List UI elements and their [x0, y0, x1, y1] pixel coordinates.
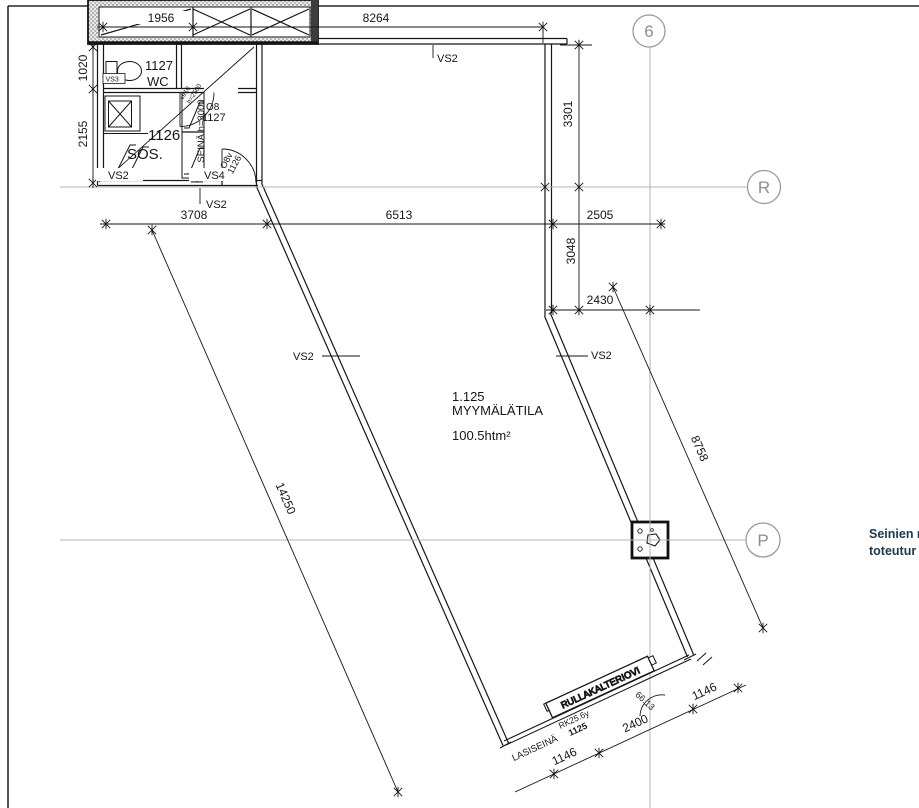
dim-8264: 8264 — [363, 11, 390, 25]
door-o8-room: 1127 — [202, 112, 226, 124]
room-1125-area: 100.5htm² — [452, 428, 511, 443]
note-line-1: Seinien r — [869, 527, 919, 541]
dim-3708: 3708 — [181, 208, 208, 222]
dim-1020: 1020 — [76, 54, 90, 81]
dim-2430: 2430 — [587, 293, 614, 307]
dimension-texts: 1956 8264 1020 2155 3301 3708 6513 2505 … — [76, 11, 719, 768]
roller-door-label: RULLAKALTERIOVI — [559, 665, 642, 711]
roller-door-box: RULLAKALTERIOVI — [546, 656, 654, 718]
dim-3301: 3301 — [561, 100, 575, 127]
grid-bubble-6-label: 6 — [644, 22, 653, 41]
room-1126-name: SOS. — [127, 146, 163, 163]
exterior-wall-hatched — [88, 0, 318, 44]
grid-bubble-6: 6 — [633, 15, 665, 47]
room-1127-name: WC — [147, 74, 169, 89]
dimension-lines — [93, 27, 763, 792]
vs2-tag-block: VS2 — [108, 170, 129, 182]
grid-bubble-p-label: P — [757, 531, 768, 550]
note-line-2: toteutur — [869, 544, 916, 558]
dimension-ticks — [89, 22, 767, 797]
dim-2505: 2505 — [587, 208, 614, 222]
room-1125-name: MYYMÄLÄTILA — [452, 403, 543, 418]
grid-bubble-r: R — [748, 171, 781, 204]
grid-bubble-p: P — [746, 523, 780, 557]
room-labels: 1127 WC 1126 SOS. 1.125 MYYMÄLÄTILA 100.… — [127, 58, 543, 443]
dim-8758: 8758 — [688, 433, 712, 463]
vs4-tag: VS4 — [204, 170, 225, 182]
vs2-tag-top: VS2 — [437, 53, 458, 65]
annotation-note: Seinien r toteutur — [869, 527, 919, 558]
vs2-tag-right-wall: VS2 — [591, 350, 612, 362]
vs3-tag: VS3 — [106, 77, 119, 84]
floor-plan-drawing: RULLAKALTERIOVI — [0, 0, 919, 808]
dim-14250: 14250 — [273, 480, 299, 516]
room-1125-number: 1.125 — [452, 389, 485, 404]
grid-bubbles: 6 R P — [633, 15, 781, 557]
dim-1956: 1956 — [148, 11, 175, 25]
dim-2155: 2155 — [76, 120, 90, 147]
dim-3048: 3048 — [564, 237, 578, 264]
sink-symbol — [105, 96, 140, 131]
dim-6513: 6513 — [386, 208, 413, 222]
room-1127-number: 1127 — [145, 58, 173, 73]
vs2-tag-left-wall: VS2 — [293, 351, 314, 363]
vs2-tag-bend: VS2 — [206, 199, 227, 211]
grid-bubble-r-label: R — [758, 178, 770, 197]
room-1126-number: 1126 — [148, 127, 180, 144]
floor-plan-sheet: RULLAKALTERIOVI — [0, 0, 919, 808]
angle-66-13: 66.13 — [633, 689, 656, 712]
storefront: RULLAKALTERIOVI — [504, 655, 691, 745]
